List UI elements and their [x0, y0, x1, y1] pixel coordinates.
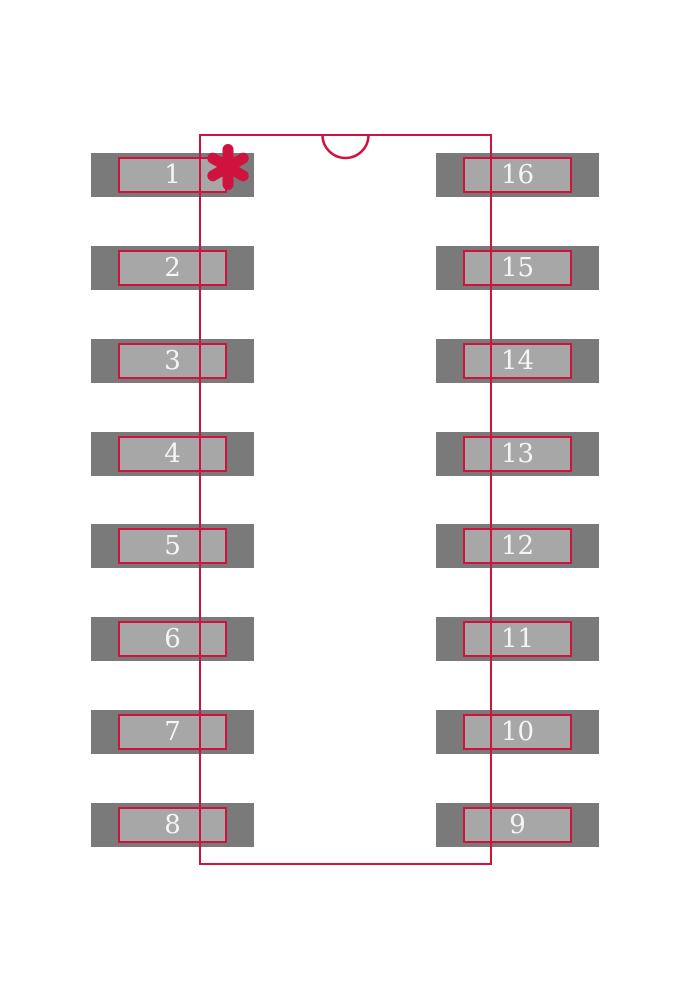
pad-left-5: 5	[91, 524, 254, 568]
pad-left-6: 6	[91, 617, 254, 661]
pad-paste-outline: 8	[118, 807, 227, 843]
pad-left-4: 4	[91, 432, 254, 476]
pin-number: 6	[164, 626, 181, 652]
pad-right-13: 13	[436, 432, 599, 476]
pad-right-16: 16	[436, 153, 599, 197]
pad-left-3: 3	[91, 339, 254, 383]
pad-paste-outline: 12	[463, 528, 572, 564]
pad-right-14: 14	[436, 339, 599, 383]
pin-number: 3	[164, 348, 181, 374]
pin-number: 13	[501, 441, 534, 467]
body-outline-layer	[0, 0, 690, 1000]
pin-number: 1	[164, 162, 181, 188]
pad-paste-outline: 13	[463, 436, 572, 472]
pad-paste-outline: 10	[463, 714, 572, 750]
pin-number: 16	[501, 162, 534, 188]
pad-left-7: 7	[91, 710, 254, 754]
pad-paste-outline: 16	[463, 157, 572, 193]
pin-number: 14	[501, 348, 534, 374]
pin-number: 10	[501, 719, 534, 745]
pad-paste-outline: 3	[118, 343, 227, 379]
pad-paste-outline: 11	[463, 621, 572, 657]
pad-paste-outline: 7	[118, 714, 227, 750]
pad-left-1: 1	[91, 153, 254, 197]
pad-paste-outline: 1	[118, 157, 227, 193]
pin-number: 12	[501, 533, 534, 559]
pin-number: 4	[164, 441, 181, 467]
pad-paste-outline: 5	[118, 528, 227, 564]
pin-number: 5	[164, 533, 181, 559]
pin-number: 7	[164, 719, 181, 745]
pin-number: 8	[164, 812, 181, 838]
pin-number: 2	[164, 255, 181, 281]
pad-right-10: 10	[436, 710, 599, 754]
footprint-diagram: 1 2 3 4 5 6 7 8 16	[0, 0, 690, 1000]
pad-paste-outline: 6	[118, 621, 227, 657]
pad-paste-outline: 9	[463, 807, 572, 843]
pad-right-12: 12	[436, 524, 599, 568]
pad-right-15: 15	[436, 246, 599, 290]
pad-right-11: 11	[436, 617, 599, 661]
pad-paste-outline: 15	[463, 250, 572, 286]
pin-number: 11	[501, 626, 534, 652]
component-body-outline	[200, 135, 491, 864]
pad-left-8: 8	[91, 803, 254, 847]
pad-left-2: 2	[91, 246, 254, 290]
pin-number: 9	[509, 812, 526, 838]
pin1-orientation-notch	[323, 135, 369, 158]
pad-right-9: 9	[436, 803, 599, 847]
pad-paste-outline: 2	[118, 250, 227, 286]
pin-number: 15	[501, 255, 534, 281]
pad-paste-outline: 14	[463, 343, 572, 379]
pad-paste-outline: 4	[118, 436, 227, 472]
